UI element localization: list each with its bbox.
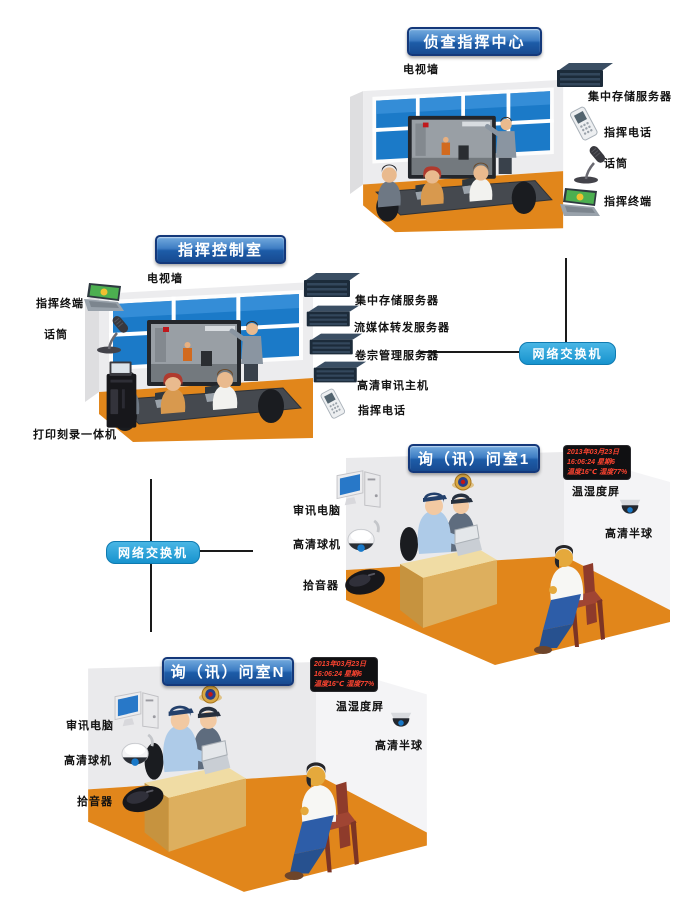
interrogation-computer-icon-roomN xyxy=(112,688,164,732)
led-date-room1: 2013年03月23日 xyxy=(567,448,627,458)
officer-chair xyxy=(400,527,418,561)
section-title-command-center: 侦查指挥中心 xyxy=(407,27,542,56)
label-half-dome-roomN: 高清半球 xyxy=(375,737,423,753)
label-ball-camera-room1: 高清球机 xyxy=(293,536,341,552)
label-tv-wall-command-center: 电视墙 xyxy=(403,61,439,77)
section-title-control-room: 指挥控制室 xyxy=(155,235,286,264)
label-temp-screen-room1: 温湿度屏 xyxy=(572,483,620,499)
label-command-terminal-ctrl: 指挥终端 xyxy=(36,295,84,311)
led-time-roomN: 16:06:24 星期6 xyxy=(314,670,374,680)
seated-person-2 xyxy=(161,373,186,414)
interrogation-computer-icon-room1 xyxy=(334,467,386,511)
command-phone-icon-cc xyxy=(565,106,603,142)
label-computer-roomN: 审讯电脑 xyxy=(66,717,114,733)
left-wall xyxy=(350,91,363,194)
label-stream-server: 流媒体转发服务器 xyxy=(354,319,450,335)
label-storage-server-ctrl: 集中存储服务器 xyxy=(355,292,439,308)
pickup-icon-room1 xyxy=(342,563,388,601)
label-storage-server-cc: 集中存储服务器 xyxy=(588,88,672,104)
storage-server-icon-cc xyxy=(553,60,615,90)
ball-camera-icon-room1 xyxy=(342,519,382,564)
label-command-phone-ctrl: 指挥电话 xyxy=(358,402,406,418)
command-center-scene xyxy=(350,74,565,234)
system-topology-diagram: 网络交换机 网络交换机 侦查指挥中心 电视墙 集中存储服务器 指挥电话 话筒 指… xyxy=(0,0,680,906)
storage-server-icon-ctrl xyxy=(300,270,362,300)
command-phone-icon-ctrl xyxy=(315,388,351,420)
label-tv-wall-control-room: 电视墙 xyxy=(147,270,183,286)
seated-person-4-chair xyxy=(512,182,536,214)
room1-scene xyxy=(343,452,673,667)
label-half-dome-room1: 高清半球 xyxy=(605,525,653,541)
led-temp-roomN: 温度16℃ 湿度77% xyxy=(314,680,374,690)
microphone-icon-ctrl xyxy=(96,314,130,354)
led-temp-room1: 温度16℃ 湿度77% xyxy=(567,468,627,478)
connector-command-center-to-switch xyxy=(565,258,567,344)
command-terminal-icon-cc xyxy=(556,186,604,220)
label-microphone-cc: 话筒 xyxy=(604,155,628,171)
connector-switch-to-room1 xyxy=(200,550,253,552)
led-time-room1: 16:06:24 星期6 xyxy=(567,458,627,468)
pickup-icon-roomN xyxy=(118,780,168,818)
network-switch-left: 网络交换机 xyxy=(106,541,200,564)
label-command-phone-cc: 指挥电话 xyxy=(604,124,652,140)
microphone-icon-cc xyxy=(573,144,607,184)
label-hd-interrogation-host: 高清审讯主机 xyxy=(357,377,429,393)
command-terminal-icon-ctrl xyxy=(80,281,128,315)
label-temp-screen-roomN: 温湿度屏 xyxy=(336,698,384,714)
label-archive-server: 卷宗管理服务器 xyxy=(355,347,439,363)
label-computer-room1: 审讯电脑 xyxy=(293,502,341,518)
half-dome-camera-icon-roomN xyxy=(387,709,415,735)
temp-humidity-led-roomN: 2013年03月23日 16:06:24 星期6 温度16℃ 湿度77% xyxy=(311,658,377,691)
seated-person-4-chair xyxy=(258,389,284,423)
section-title-roomN: 询（讯）问室N xyxy=(162,657,294,686)
label-pickup-room1: 拾音器 xyxy=(303,577,339,593)
label-print-burn-machine: 打印刻录一体机 xyxy=(33,426,117,442)
label-command-terminal-cc: 指挥终端 xyxy=(604,193,652,209)
led-date-roomN: 2013年03月23日 xyxy=(314,660,374,670)
label-microphone-ctrl: 话筒 xyxy=(44,326,68,342)
temp-humidity-led-room1: 2013年03月23日 16:06:24 星期6 温度16℃ 湿度77% xyxy=(564,446,630,479)
ball-camera-icon-roomN xyxy=(116,733,156,778)
stream-server-icon xyxy=(303,303,361,329)
print-burn-machine-icon xyxy=(98,360,144,430)
seated-person-2 xyxy=(421,166,444,205)
half-dome-camera-icon-room1 xyxy=(616,496,644,522)
network-switch-right: 网络交换机 xyxy=(519,342,616,365)
section-title-room1: 询（讯）问室1 xyxy=(408,444,540,473)
label-ball-camera-roomN: 高清球机 xyxy=(64,752,112,768)
label-pickup-roomN: 拾音器 xyxy=(77,793,113,809)
